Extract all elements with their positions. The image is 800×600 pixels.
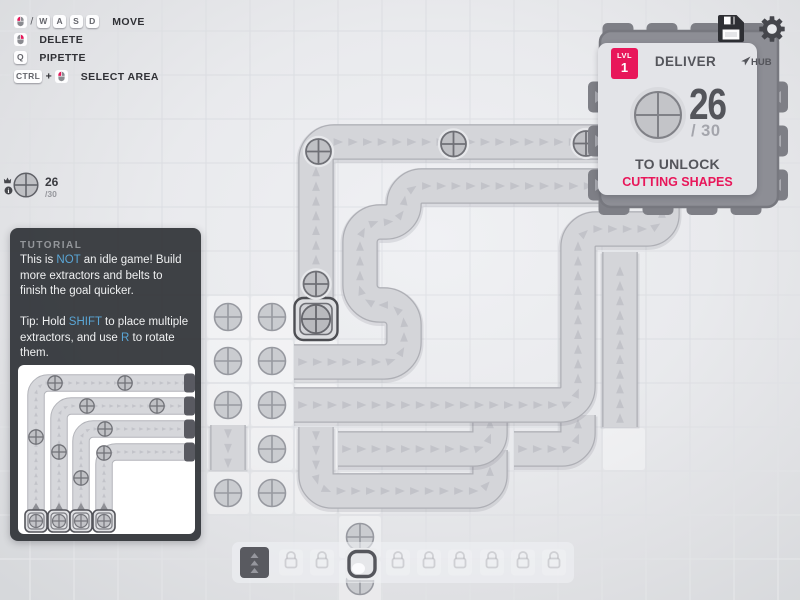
svg-text:i: i bbox=[7, 188, 9, 195]
